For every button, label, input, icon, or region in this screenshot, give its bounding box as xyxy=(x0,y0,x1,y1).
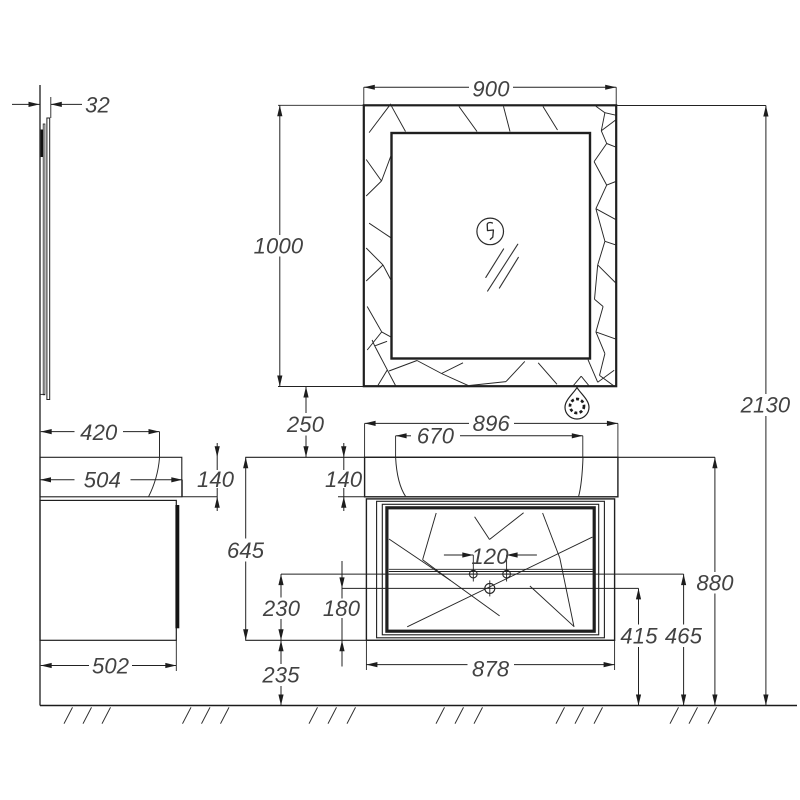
svg-text:2130: 2130 xyxy=(740,393,791,418)
svg-text:896: 896 xyxy=(473,411,511,436)
svg-text:180: 180 xyxy=(323,596,361,621)
svg-text:645: 645 xyxy=(227,538,265,563)
svg-text:504: 504 xyxy=(84,468,121,493)
svg-text:880: 880 xyxy=(696,571,734,596)
svg-text:235: 235 xyxy=(261,663,300,688)
svg-text:230: 230 xyxy=(262,596,301,621)
svg-text:900: 900 xyxy=(472,77,510,102)
svg-text:1000: 1000 xyxy=(254,234,304,259)
svg-text:250: 250 xyxy=(286,412,325,437)
svg-text:140: 140 xyxy=(197,467,235,492)
svg-text:670: 670 xyxy=(417,423,455,448)
svg-text:120: 120 xyxy=(471,544,509,569)
svg-text:140: 140 xyxy=(325,467,363,492)
svg-text:502: 502 xyxy=(92,653,129,678)
svg-text:415: 415 xyxy=(620,624,658,649)
svg-text:465: 465 xyxy=(665,624,703,649)
svg-text:32: 32 xyxy=(85,92,110,117)
svg-text:878: 878 xyxy=(472,656,510,681)
svg-text:420: 420 xyxy=(80,420,118,445)
